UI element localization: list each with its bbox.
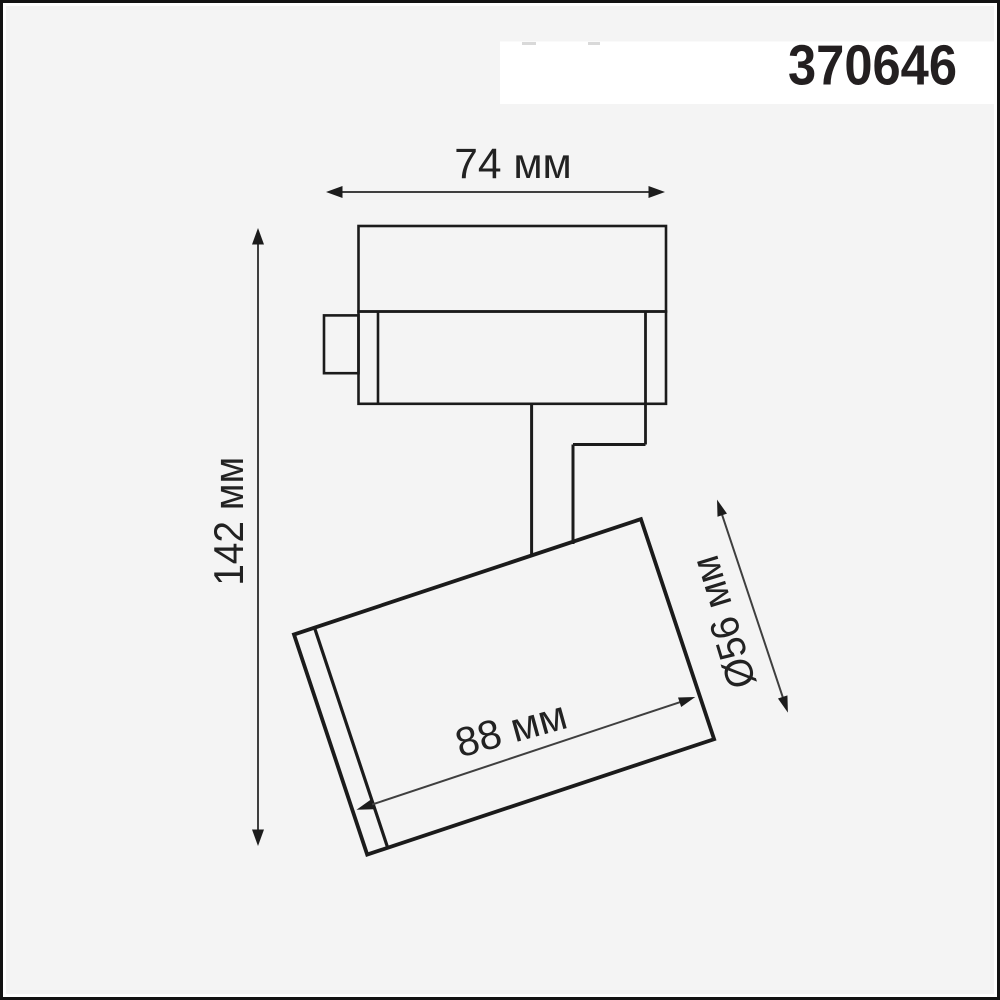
svg-text:74 мм: 74 мм: [454, 141, 572, 188]
svg-text:142 мм: 142 мм: [205, 457, 252, 586]
svg-text:370646: 370646: [788, 34, 957, 98]
